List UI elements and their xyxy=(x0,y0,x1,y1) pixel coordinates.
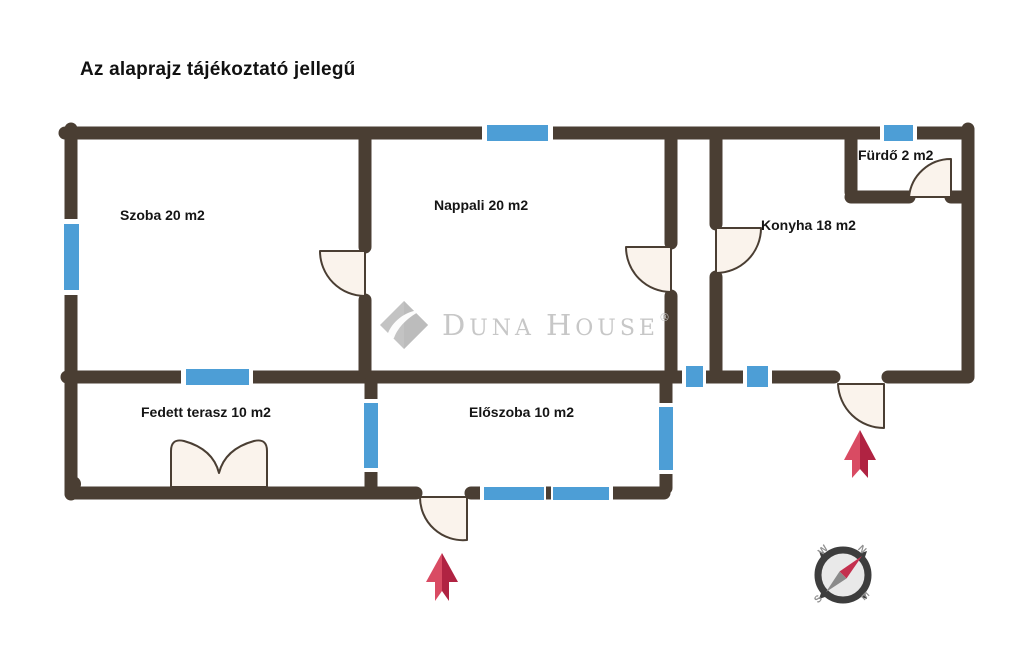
door-nappali xyxy=(626,247,671,292)
door-konyha-exterior xyxy=(838,384,884,428)
room-label-fedett-terasz: Fedett terasz 10 m2 xyxy=(141,404,271,420)
compass-rose-icon: W N S E xyxy=(812,543,871,606)
registered-mark: ® xyxy=(659,311,670,324)
room-label-furdo: Fürdő 2 m2 xyxy=(858,147,933,163)
window-szoba-terasz xyxy=(181,367,253,387)
watermark-text: DUNA HOUSE® xyxy=(442,311,670,340)
window-terasz-eloszoba xyxy=(361,399,381,472)
entrance-arrow-konyha-icon xyxy=(844,430,876,478)
window-eloszoba-south-1 xyxy=(480,485,546,502)
duna-house-watermark: DUNA HOUSE® xyxy=(378,299,670,351)
door-konyha xyxy=(716,228,761,273)
door-front-entrance xyxy=(420,497,467,540)
window-eloszoba-south-2 xyxy=(551,485,613,502)
window-corridor-south xyxy=(682,364,706,389)
window-furdo-north xyxy=(880,123,917,143)
window-konyha-south xyxy=(743,364,772,389)
duna-house-logo-icon xyxy=(378,299,430,351)
room-label-konyha: Konyha 18 m2 xyxy=(761,217,856,233)
room-label-nappali: Nappali 20 m2 xyxy=(434,197,528,213)
room-label-szoba: Szoba 20 m2 xyxy=(120,207,205,223)
window-szoba-west xyxy=(62,219,81,295)
window-nappali-north xyxy=(482,123,553,143)
floorplan-page: Az alaprajz tájékoztató jellegű xyxy=(0,0,1024,666)
column-post xyxy=(65,476,81,492)
room-label-eloszoba: Előszoba 10 m2 xyxy=(469,404,574,420)
door-furdo xyxy=(909,159,951,197)
door-terasz-french xyxy=(171,440,267,487)
entrance-arrow-front-icon xyxy=(426,553,458,601)
window-eloszoba-east xyxy=(656,403,676,474)
door-szoba xyxy=(320,251,365,296)
